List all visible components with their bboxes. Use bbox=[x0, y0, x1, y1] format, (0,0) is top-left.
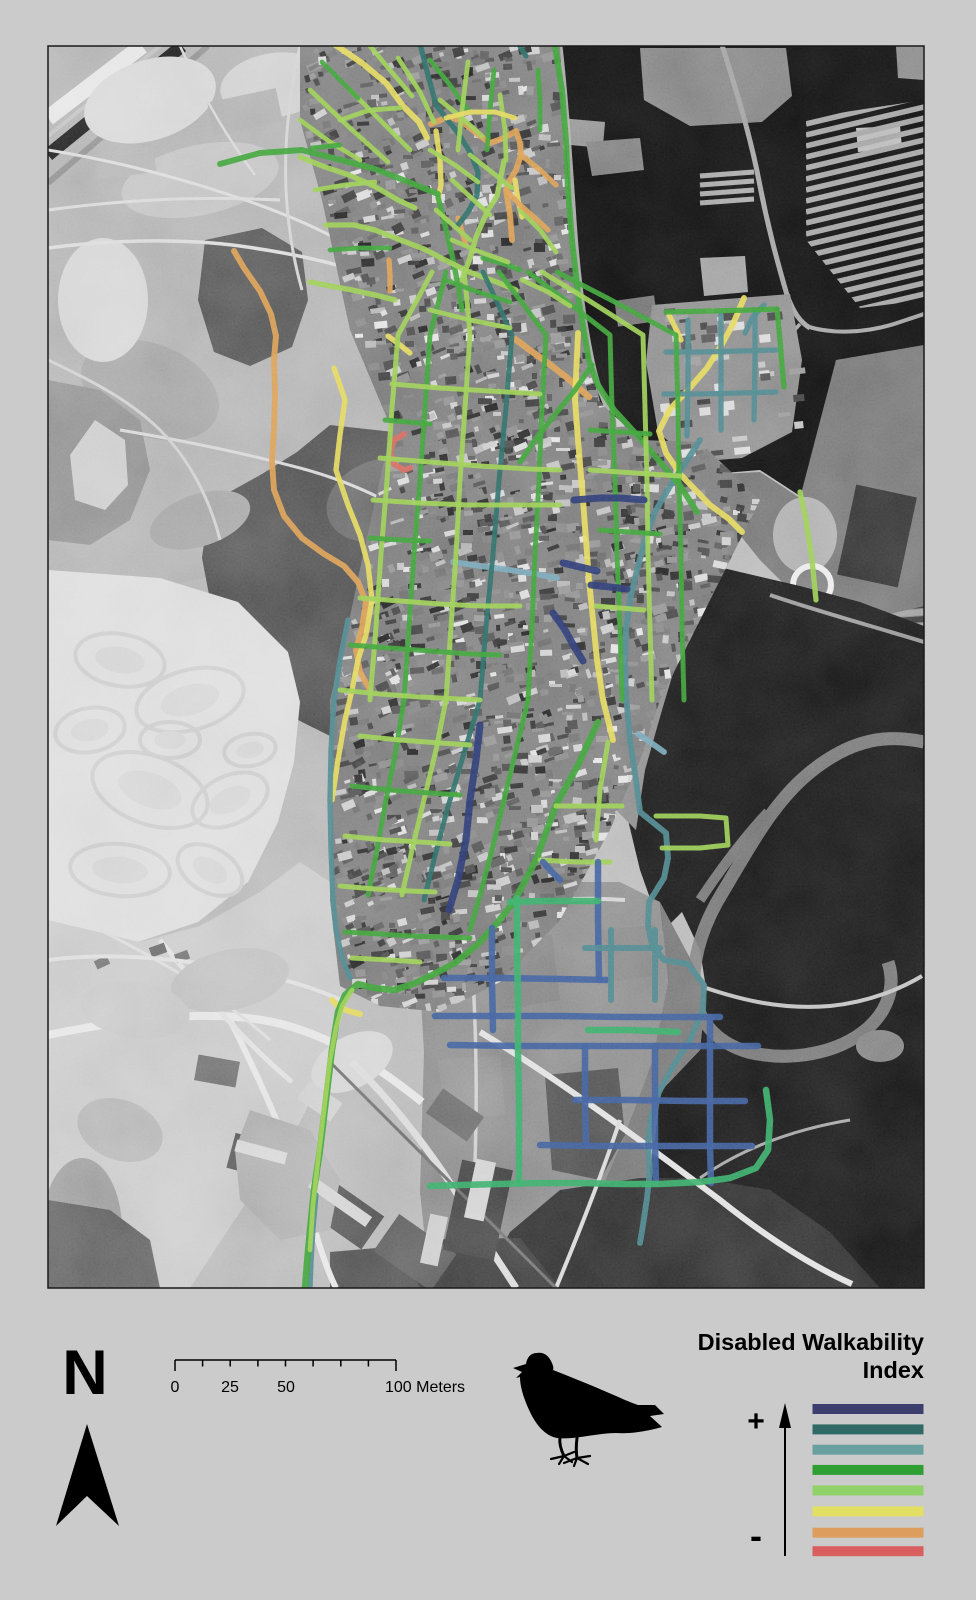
svg-text:25: 25 bbox=[221, 1379, 239, 1396]
svg-text:Disabled Walkability: Disabled Walkability bbox=[698, 1329, 924, 1355]
svg-text:0: 0 bbox=[171, 1379, 180, 1396]
svg-text:N: N bbox=[62, 1338, 108, 1408]
svg-text:50: 50 bbox=[277, 1379, 295, 1396]
svg-text:100 Meters: 100 Meters bbox=[385, 1379, 465, 1396]
svg-text:+: + bbox=[747, 1405, 765, 1438]
svg-text:-: - bbox=[750, 1515, 762, 1556]
svg-text:Index: Index bbox=[863, 1357, 924, 1383]
